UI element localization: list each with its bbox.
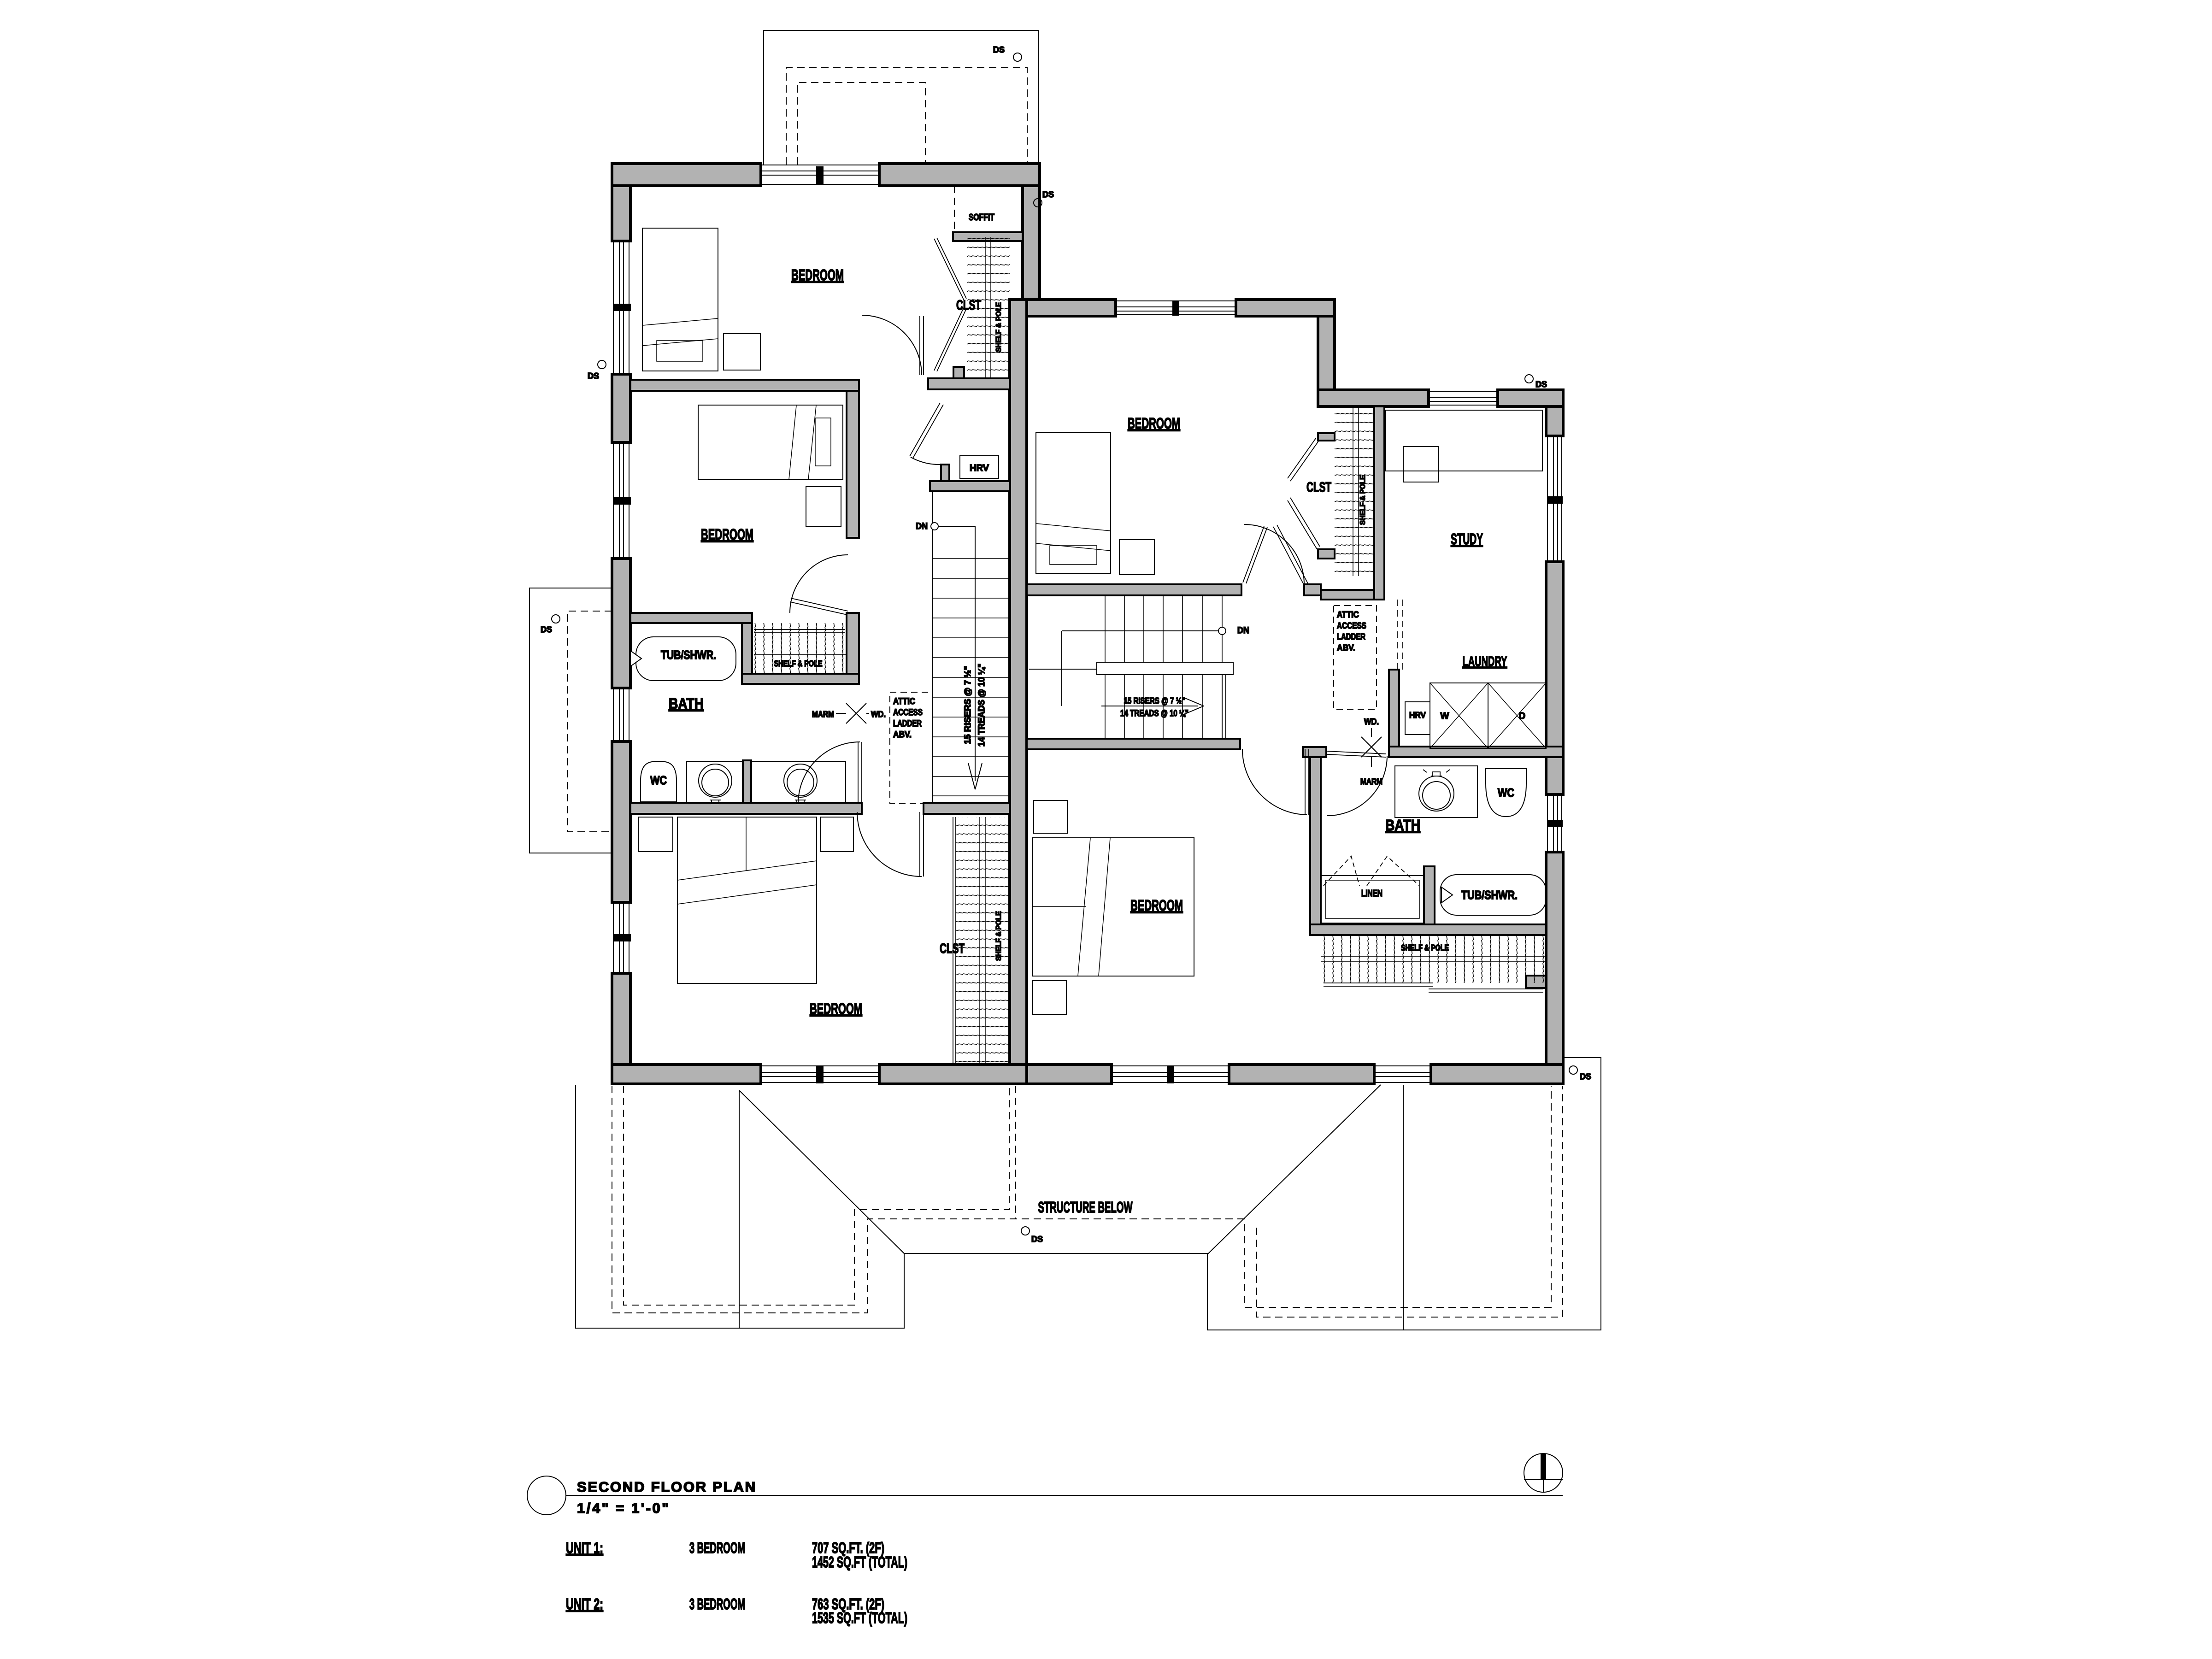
svg-text:ABV.: ABV. [893,730,912,740]
svg-text:DS: DS [1031,1235,1043,1244]
svg-text:ACCESS: ACCESS [893,708,923,718]
svg-text:TUB/SHWR.: TUB/SHWR. [661,648,716,662]
svg-text:TUB/SHWR.: TUB/SHWR. [1461,888,1518,902]
svg-text:BEDROOM: BEDROOM [1128,415,1180,432]
svg-text:ATTIC: ATTIC [1337,610,1359,620]
svg-text:LAUNDRY: LAUNDRY [1463,654,1507,669]
svg-text:LINEN: LINEN [1361,888,1382,899]
svg-text:3 BEDROOM: 3 BEDROOM [689,1595,745,1612]
svg-text:CLST: CLST [956,298,981,313]
svg-text:DS: DS [541,625,552,634]
svg-text:BEDROOM: BEDROOM [810,1000,862,1017]
svg-text:WD.: WD. [871,710,886,719]
svg-text:BEDROOM: BEDROOM [1130,897,1183,914]
svg-text:W: W [1441,711,1449,721]
svg-text:15 RISERS @ 7 ½": 15 RISERS @ 7 ½" [1124,696,1185,706]
svg-text:SECOND FLOOR PLAN: SECOND FLOOR PLAN [577,1479,755,1495]
svg-text:UNIT 2:: UNIT 2: [566,1595,603,1612]
svg-text:DS: DS [1535,380,1547,389]
svg-text:HRV: HRV [1409,711,1426,720]
svg-text:DS: DS [1580,1072,1591,1081]
svg-text:STRUCTURE BELOW: STRUCTURE BELOW [1038,1199,1133,1216]
svg-text:14 TREADS @ 10 ¼": 14 TREADS @ 10 ¼" [977,664,987,747]
svg-text:ACCESS: ACCESS [1337,621,1366,631]
svg-text:3 BEDROOM: 3 BEDROOM [689,1539,745,1556]
svg-text:SHELF & POLE: SHELF & POLE [995,302,1003,352]
svg-text:MARM: MARM [812,710,834,719]
svg-text:DS: DS [588,371,599,381]
svg-text:BATH: BATH [669,695,704,712]
svg-text:ATTIC: ATTIC [893,697,915,706]
svg-text:15 RISERS @ 7 ½": 15 RISERS @ 7 ½" [963,666,973,744]
svg-text:SOFFIT: SOFFIT [969,212,994,223]
svg-text:LADDER: LADDER [1337,632,1365,642]
svg-text:CLST: CLST [940,941,965,956]
svg-text:WC: WC [1498,786,1514,800]
svg-text:SHELF & POLE: SHELF & POLE [995,911,1003,961]
svg-text:DN: DN [1237,626,1249,635]
svg-text:DS: DS [1042,190,1054,199]
svg-text:BEDROOM: BEDROOM [791,266,844,283]
svg-text:MARM: MARM [1360,777,1382,786]
svg-text:DS: DS [993,45,1005,54]
svg-text:HRV: HRV [970,463,989,473]
svg-text:ABV.: ABV. [1337,643,1355,653]
svg-text:D: D [1519,711,1525,721]
svg-text:LADDER: LADDER [893,719,922,729]
svg-text:SHELF & POLE: SHELF & POLE [774,659,823,668]
svg-text:WC: WC [650,773,667,787]
svg-text:DN: DN [916,522,928,531]
svg-text:STUDY: STUDY [1451,530,1483,547]
svg-text:1535 SQ.FT (TOTAL): 1535 SQ.FT (TOTAL) [812,1609,907,1626]
svg-text:WD.: WD. [1364,717,1379,726]
svg-text:1452 SQ.FT (TOTAL): 1452 SQ.FT (TOTAL) [812,1553,907,1571]
svg-text:BATH: BATH [1385,817,1420,834]
svg-text:SHELF & POLE: SHELF & POLE [1359,475,1367,525]
svg-text:BEDROOM: BEDROOM [701,526,753,543]
svg-text:1/4" = 1'-0": 1/4" = 1'-0" [577,1500,669,1516]
svg-text:CLST: CLST [1306,480,1331,495]
svg-text:SHELF & POLE: SHELF & POLE [1401,943,1449,953]
svg-text:UNIT 1:: UNIT 1: [566,1539,603,1556]
svg-text:14 TREADS @ 10 ¼": 14 TREADS @ 10 ¼" [1120,709,1188,718]
